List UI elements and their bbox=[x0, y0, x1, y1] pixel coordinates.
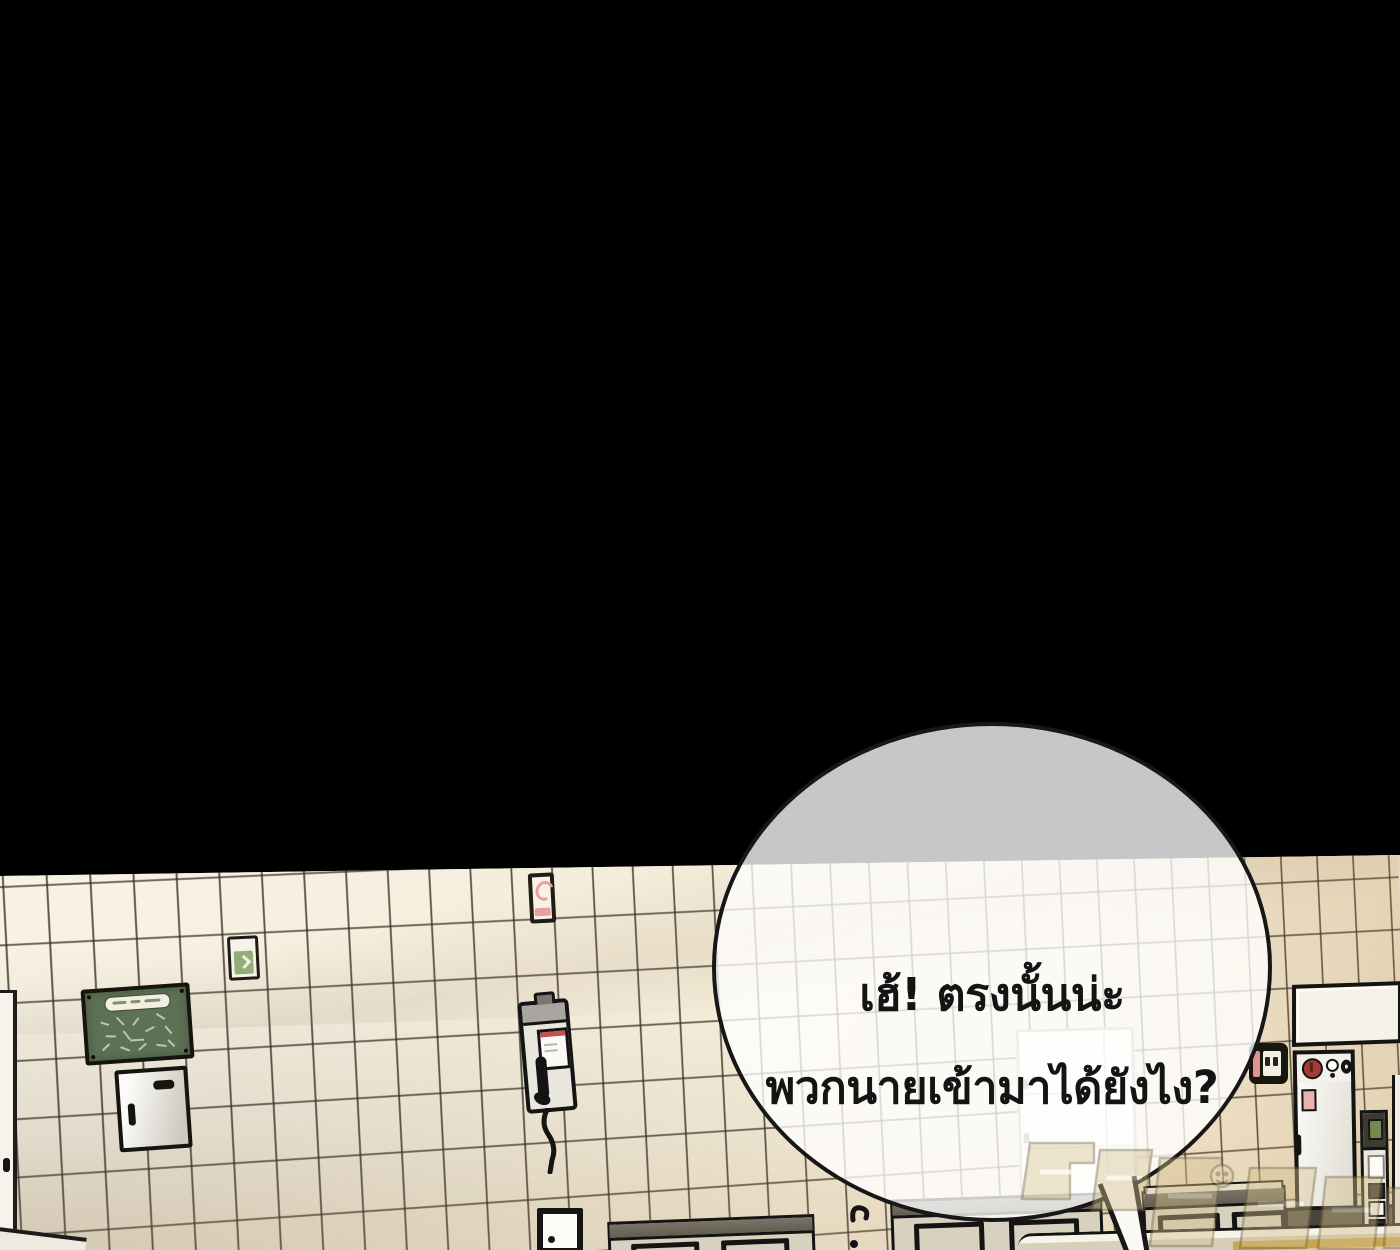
speech-text-line-2: พวกนายเข้ามาได้ยังไง? bbox=[710, 1041, 1274, 1134]
payphone bbox=[517, 998, 578, 1114]
water-heater-machine bbox=[1293, 1049, 1358, 1210]
dial-icon bbox=[1326, 1059, 1339, 1072]
door-knob-icon bbox=[548, 1236, 555, 1243]
exit-arrow-icon bbox=[234, 951, 254, 975]
phone-top-cap bbox=[522, 1002, 567, 1026]
dispenser-slot bbox=[1368, 1201, 1385, 1217]
wall-hook bbox=[845, 1202, 873, 1250]
exhaust-hood-panel bbox=[1292, 981, 1400, 1047]
sign-text-bar bbox=[535, 908, 551, 917]
vent-slot-icon bbox=[153, 1079, 175, 1089]
oven-door-outline bbox=[721, 1238, 791, 1250]
card-text-line bbox=[544, 1049, 557, 1052]
pillar-latch-icon bbox=[3, 1158, 10, 1172]
chalkboard bbox=[80, 982, 194, 1065]
warning-label bbox=[1301, 1089, 1316, 1111]
door-handle-icon bbox=[128, 1103, 137, 1125]
dispenser-window bbox=[1368, 1155, 1385, 1179]
machine-body bbox=[1293, 1081, 1357, 1210]
button-dot-icon bbox=[1330, 1073, 1335, 1078]
comic-panel: เฮ้! ตรงนั้นน่ะ พวกนายเข้ามาได้ยังไง? bbox=[0, 0, 1400, 1250]
green-indicator-icon bbox=[1368, 1119, 1383, 1140]
phone-symbol-icon bbox=[533, 878, 557, 903]
speech-text-line-1: เฮ้! ตรงนั้นน่ะ bbox=[710, 948, 1274, 1041]
card-text-line bbox=[544, 1043, 557, 1046]
phone-earpiece-icon bbox=[532, 1090, 552, 1108]
phone-sign bbox=[528, 872, 557, 923]
exit-sign bbox=[227, 935, 260, 981]
card-red-stripe bbox=[540, 1030, 565, 1037]
phone-cord bbox=[530, 1108, 570, 1174]
gauge-icon bbox=[1341, 1060, 1352, 1074]
chalk-scribbles bbox=[85, 986, 199, 1069]
wall-hatch-door bbox=[537, 1208, 583, 1250]
speech-text: เฮ้! ตรงนั้นน่ะ พวกนายเข้ามาได้ยังไง? bbox=[710, 948, 1274, 1134]
wall-cabinet-door bbox=[114, 1066, 193, 1153]
machine-handle-icon bbox=[1295, 1134, 1301, 1155]
red-knob-icon bbox=[1302, 1058, 1323, 1079]
yellow-trim-stripe bbox=[1233, 1236, 1400, 1250]
wall-corner-pillar bbox=[0, 990, 17, 1250]
oven-door-outline bbox=[631, 1241, 701, 1250]
oven-door-outline bbox=[914, 1221, 986, 1250]
dispenser-slot bbox=[1368, 1183, 1385, 1199]
